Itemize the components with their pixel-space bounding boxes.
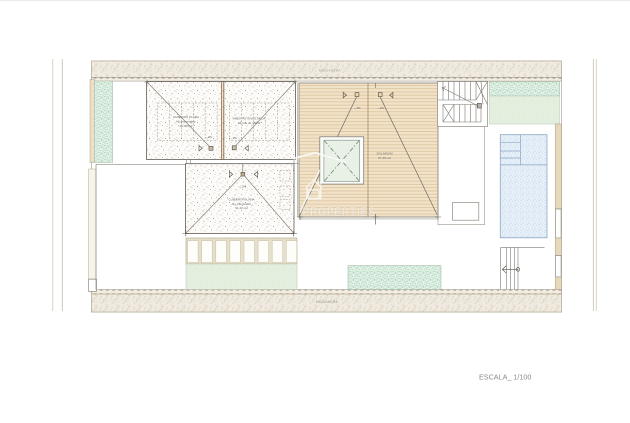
svg-text:↔2%: ↔2% (205, 135, 212, 139)
svg-text:18 uds de 450W: 18 uds de 450W (238, 121, 261, 125)
svg-text:PROPERTIES: PROPERTIES (303, 204, 376, 219)
svg-text:20.86 m2: 20.86 m2 (180, 124, 193, 128)
svg-text:↔2%: ↔2% (354, 106, 361, 110)
svg-text:31.40 m2: 31.40 m2 (235, 206, 248, 210)
svg-text:↔2%: ↔2% (377, 106, 384, 110)
svg-text:MEDIANERA: MEDIANERA (316, 300, 338, 304)
svg-text:↔2%: ↔2% (230, 136, 237, 140)
svg-text:ESCALA_ 1/100: ESCALA_ 1/100 (479, 373, 531, 382)
svg-text:67.35 m2: 67.35 m2 (378, 156, 391, 160)
svg-text:MEDIANERA: MEDIANERA (319, 68, 342, 72)
svg-text:↔2%: ↔2% (239, 185, 246, 189)
